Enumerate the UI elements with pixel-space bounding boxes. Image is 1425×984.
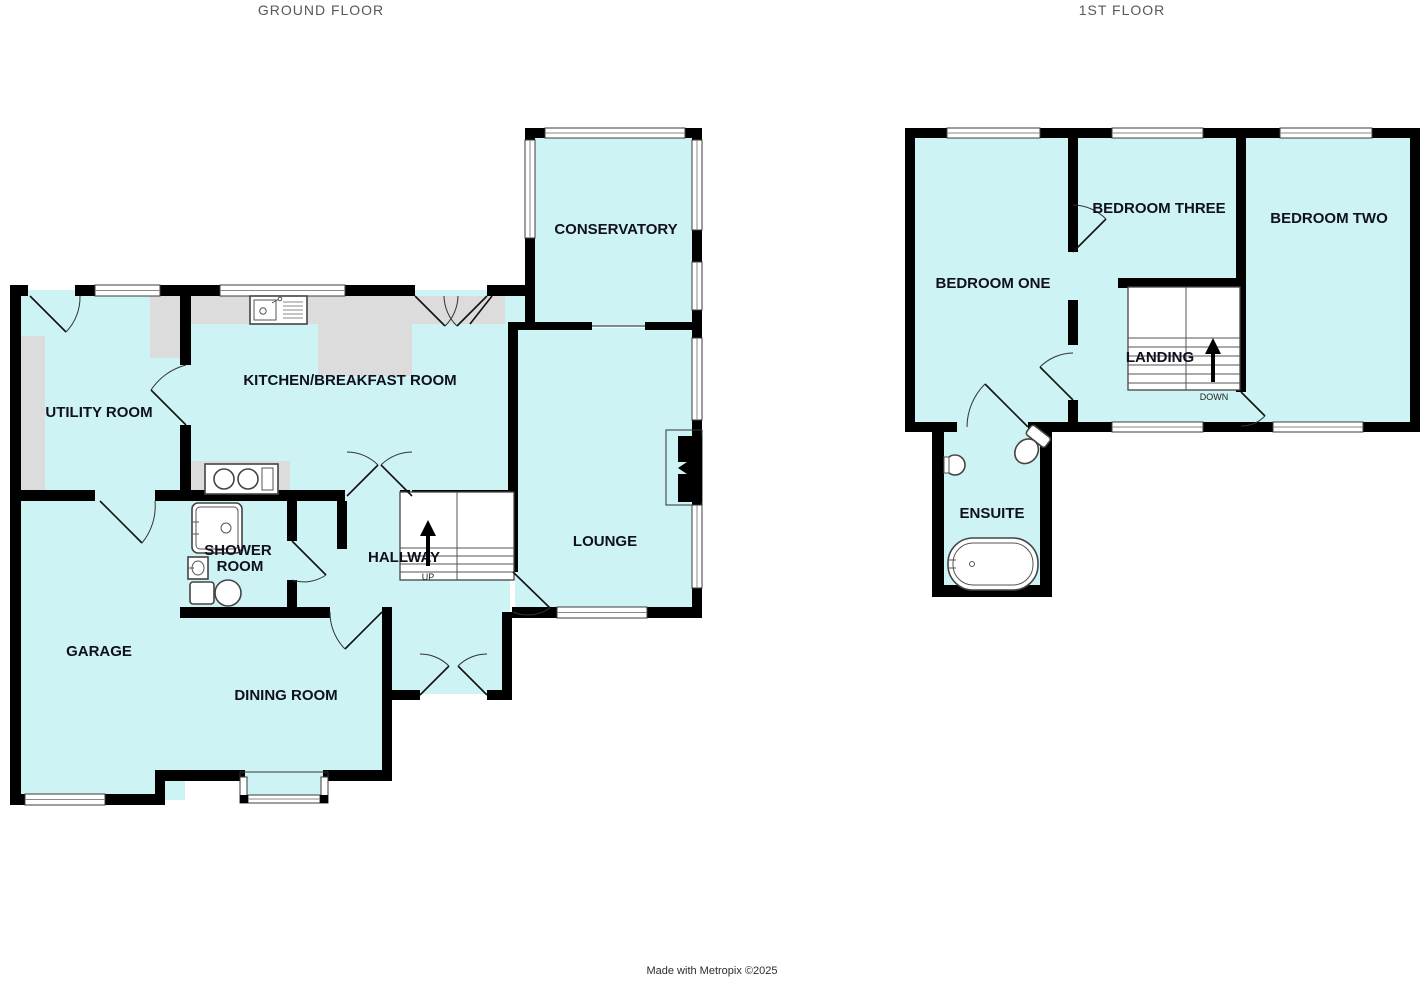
lounge-bottom-window (557, 607, 647, 618)
bedroom-one-window (947, 128, 1040, 138)
bath-icon (948, 538, 1038, 590)
ground-floor-plan: CONSERVATORY KITCHEN/BREAKFAST ROOM UTIL… (10, 128, 702, 805)
garage-window (25, 794, 105, 805)
room-label-bedroom-one: BEDROOM ONE (935, 275, 1050, 292)
ensuite-basin-icon (944, 455, 965, 475)
hob-icon (205, 464, 278, 494)
room-label-bedroom-two: BEDROOM TWO (1270, 210, 1388, 227)
staircase-first (1128, 287, 1240, 390)
room-label-ensuite: ENSUITE (959, 505, 1024, 522)
room-label-landing: LANDING (1126, 349, 1194, 366)
kitchen-sink-icon (250, 296, 307, 324)
first-floor-title: 1ST FLOOR (1079, 2, 1166, 18)
utility-window (95, 285, 160, 296)
first-floor-plan: BEDROOM ONE BEDROOM THREE BEDROOM TWO LA… (905, 128, 1420, 597)
bedroom-three-window (1112, 128, 1203, 138)
bedroom-two-window (1280, 128, 1372, 138)
room-label-dining: DINING ROOM (234, 687, 337, 704)
room-label-garage: GARAGE (66, 643, 132, 660)
room-ensuite-doorway (957, 422, 1028, 432)
room-label-shower-line2: ROOM (217, 558, 264, 575)
room-label-kitchen: KITCHEN/BREAKFAST ROOM (243, 372, 456, 389)
staircase-ground (400, 492, 514, 580)
ground-floor-title: GROUND FLOOR (258, 2, 384, 18)
room-label-lounge: LOUNGE (573, 533, 637, 550)
bedroom-two-bottom-window (1273, 422, 1363, 432)
floorplan-canvas: GROUND FLOOR 1ST FLOOR (0, 0, 1425, 984)
room-lounge (515, 328, 695, 613)
footer-credit: Made with Metropix ©2025 (646, 965, 777, 977)
room-label-bedroom-three: BEDROOM THREE (1092, 200, 1225, 217)
stairs-down-label: DOWN (1200, 392, 1229, 402)
room-label-utility: UTILITY ROOM (45, 404, 152, 421)
kitchen-window (220, 285, 345, 296)
landing-window (1112, 422, 1203, 432)
shower-room-basin-icon (188, 557, 208, 579)
floorplan-page: GROUND FLOOR 1ST FLOOR (0, 0, 1425, 984)
stairs-up-label: UP (422, 572, 435, 582)
room-entry (385, 612, 510, 694)
room-label-conservatory: CONSERVATORY (554, 221, 677, 238)
room-label-shower-line1: SHOWER (204, 542, 272, 559)
